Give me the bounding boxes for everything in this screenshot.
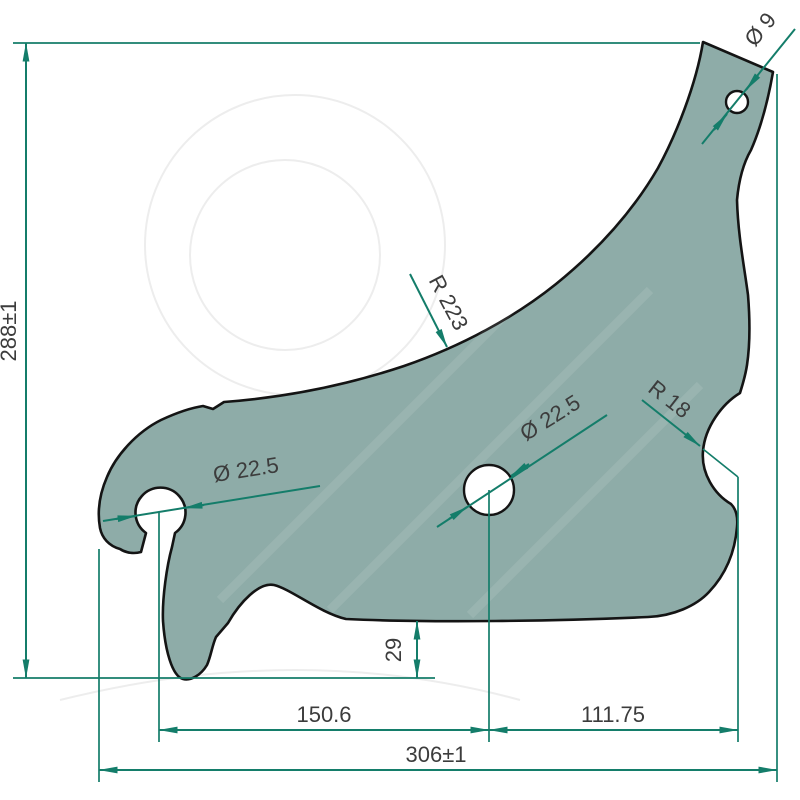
dimension-edge-radius: R 223 (410, 271, 473, 347)
top-hole-diameter-label: Ø 9 (739, 8, 781, 51)
dimension-foot-offset: 29 (381, 621, 417, 678)
left-spacing-label: 150.6 (296, 702, 351, 727)
drawing-canvas: 288±1 306±1 150.6 111.75 29 Ø 22.5 Ø 22.… (0, 0, 800, 800)
foot-offset-label: 29 (381, 638, 406, 662)
watermark-arc (60, 670, 520, 700)
height-label: 288±1 (0, 300, 21, 361)
width-label: 306±1 (405, 742, 466, 767)
technical-drawing: 288±1 306±1 150.6 111.75 29 Ø 22.5 Ø 22.… (0, 0, 800, 800)
right-spacing-label: 111.75 (581, 702, 645, 727)
watermark-circle (190, 160, 380, 350)
edge-radius-label: R 223 (424, 271, 474, 335)
